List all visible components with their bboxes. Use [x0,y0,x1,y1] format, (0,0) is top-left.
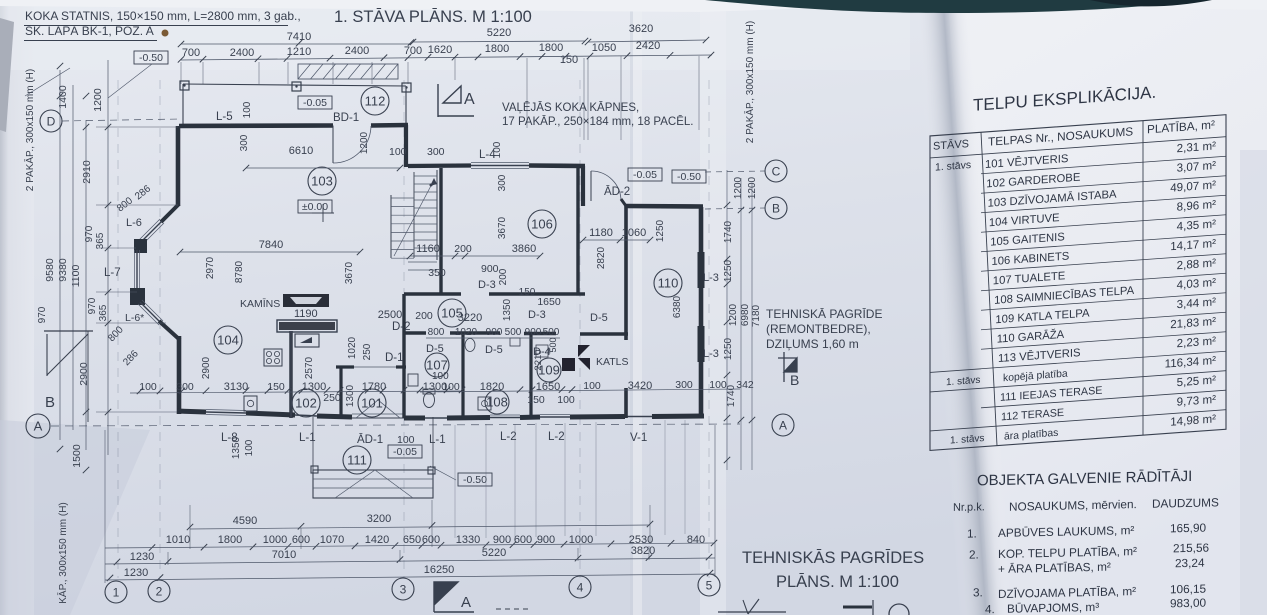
svg-text:KOP. TELPU PLATĪBA, m²: KOP. TELPU PLATĪBA, m² [998,544,1137,561]
svg-text:150: 150 [560,54,578,66]
svg-text:900: 900 [481,263,499,275]
svg-text:1500: 1500 [71,444,83,468]
svg-text:970: 970 [87,297,98,314]
svg-text:D-5: D-5 [426,343,444,355]
svg-text:-0.50: -0.50 [677,171,701,183]
svg-text:1050: 1050 [592,42,616,54]
svg-text:-0.50: -0.50 [463,474,487,486]
svg-text:3860: 3860 [512,243,536,255]
svg-text:2 PAKĀP., 300x150 mm (H): 2 PAKĀP., 300x150 mm (H) [744,21,756,143]
svg-text:4: 4 [577,580,584,594]
svg-text:900: 900 [493,534,511,546]
svg-text:23,24: 23,24 [1175,556,1205,571]
svg-text:2210: 2210 [533,349,544,370]
svg-text:104: 104 [217,333,239,348]
svg-text:110: 110 [658,276,679,291]
svg-text:300: 300 [239,134,250,151]
svg-text:1800: 1800 [485,43,509,55]
svg-text:365: 365 [95,232,106,249]
svg-text:3670: 3670 [344,261,355,284]
svg-text:-0.05: -0.05 [393,446,417,458]
svg-text:1740: 1740 [723,220,734,243]
svg-text:150: 150 [527,394,545,406]
svg-text:4590: 4590 [233,515,257,527]
svg-text:2500: 2500 [378,309,402,321]
svg-text:3: 3 [400,582,407,596]
svg-text:7840: 7840 [259,239,283,251]
svg-text:ĀD-2: ĀD-2 [604,186,630,198]
svg-text:1800: 1800 [218,534,242,546]
svg-text:A: A [464,91,475,108]
svg-text:L-1: L-1 [429,434,446,446]
svg-text:350: 350 [428,267,446,279]
svg-text:983,00: 983,00 [1170,596,1207,611]
svg-text:1020: 1020 [347,336,358,359]
svg-text:L-6: L-6 [126,217,142,229]
svg-text:D-5: D-5 [485,344,503,356]
svg-text:1: 1 [113,585,120,599]
svg-text:250: 250 [362,343,373,360]
svg-text:5: 5 [706,578,713,592]
svg-text:1200: 1200 [747,176,758,199]
svg-text:BD-1: BD-1 [333,112,359,124]
svg-text:1190: 1190 [294,308,318,320]
svg-text:4.: 4. [985,602,995,615]
svg-text:-0.05: -0.05 [633,169,657,181]
svg-text:L-2: L-2 [500,431,517,443]
svg-text:2910: 2910 [81,160,93,184]
svg-text:2970: 2970 [205,256,216,279]
svg-text:3.: 3. [973,585,983,599]
svg-text:B: B [772,201,780,215]
svg-text:103: 103 [311,174,333,189]
svg-text:KĀP., 300x150 mm (H): KĀP., 300x150 mm (H) [57,502,69,604]
svg-text:2400: 2400 [345,45,369,57]
svg-text:106: 106 [531,217,553,232]
svg-text:16250: 16250 [424,564,455,576]
svg-text:100: 100 [244,439,255,456]
svg-text:500: 500 [548,337,558,352]
svg-text:L-7: L-7 [104,267,121,279]
svg-text:1200: 1200 [92,88,104,112]
svg-text:1300: 1300 [345,384,356,407]
svg-text:100: 100 [557,394,575,406]
svg-text:17 PAKĀP., 250×184 mm, 18 PACĒ: 17 PAKĀP., 250×184 mm, 18 PACĒL. [502,116,693,128]
svg-text:A: A [779,418,787,432]
svg-text:8780: 8780 [234,260,245,283]
svg-text:BŪVAPJOMS, m³: BŪVAPJOMS, m³ [1007,600,1099,615]
svg-text:1650: 1650 [537,296,561,308]
svg-text:KATLS: KATLS [596,356,628,368]
svg-text:700: 700 [182,47,200,59]
svg-text:1620: 1620 [428,44,452,56]
svg-text:1330: 1330 [456,534,480,546]
svg-text:V-1: V-1 [630,432,647,444]
svg-text:1010: 1010 [166,534,190,546]
svg-text:2900: 2900 [201,356,212,379]
svg-text:150: 150 [519,287,536,298]
svg-text:600: 600 [422,534,440,546]
svg-text:3820: 3820 [631,545,655,557]
svg-text:6380: 6380 [672,295,683,318]
svg-text:102: 102 [295,396,317,411]
svg-text:108: 108 [486,395,508,410]
svg-text:800: 800 [428,327,445,338]
svg-text:3220: 3220 [458,312,482,324]
svg-text:DAUDZUMS: DAUDZUMS [1152,495,1219,510]
svg-text:ĀD-1: ĀD-1 [357,434,383,446]
svg-text:1160: 1160 [416,243,440,255]
svg-text:2820: 2820 [596,246,607,269]
svg-text:2420: 2420 [636,40,660,52]
svg-text:200: 200 [415,310,433,322]
svg-text:NOSAUKUMS, mērvien.: NOSAUKUMS, mērvien. [1009,497,1137,514]
svg-text:VAĻĒJĀS KOKA KĀPNES,: VAĻĒJĀS KOKA KĀPNES, [502,102,639,114]
svg-text:1420: 1420 [365,534,389,546]
svg-text:1800: 1800 [539,42,563,54]
svg-text:2: 2 [156,584,163,598]
svg-text:900: 900 [525,327,542,338]
svg-text:100: 100 [139,381,157,393]
svg-text:600: 600 [292,534,310,546]
svg-text:DZIĻUMS 1,60 m: DZIĻUMS 1,60 m [766,337,859,351]
svg-text:1200: 1200 [728,303,739,326]
svg-text:9380: 9380 [57,258,69,282]
svg-text:KAMĪNS: KAMĪNS [240,298,280,310]
svg-text:111: 111 [347,453,367,468]
svg-text:C: C [772,164,781,178]
svg-text:300: 300 [497,174,508,191]
svg-text:B: B [45,394,55,411]
svg-text:1250: 1250 [655,219,666,242]
svg-text:D-3: D-3 [478,279,496,291]
svg-text:106,15: 106,15 [1170,582,1207,597]
svg-text:1020: 1020 [455,327,478,338]
svg-text:PLĀNS. M 1:100: PLĀNS. M 1:100 [776,573,899,591]
svg-text:100: 100 [242,101,253,118]
svg-text:L-5: L-5 [216,111,233,123]
svg-text:150: 150 [267,381,285,393]
svg-text:1250: 1250 [723,259,734,282]
svg-text:L-3: L-3 [703,272,719,284]
svg-text:1230: 1230 [130,551,154,563]
svg-text:KOKA STATNIS, 150×150 mm, L=28: KOKA STATNIS, 150×150 mm, L=2800 mm, 3 g… [25,9,301,23]
svg-text:A: A [34,419,43,434]
svg-text:100: 100 [397,434,415,446]
svg-text:700: 700 [404,45,422,57]
svg-text:SK. LAPĀ BK-1, POZ. A: SK. LAPĀ BK-1, POZ. A [25,24,154,38]
svg-text:200: 200 [454,243,472,255]
svg-text:5220: 5220 [482,547,506,559]
svg-text:1210: 1210 [287,46,311,58]
svg-text:L-3: L-3 [703,348,719,360]
svg-text:DZĪVOJAMA PLATĪBA, m²: DZĪVOJAMA PLATĪBA, m² [998,584,1136,601]
svg-text:(REMONTBEDRE),: (REMONTBEDRE), [766,322,871,336]
svg-text:650: 650 [403,534,421,546]
svg-text:2 PAKĀP., 300x150 mm (H): 2 PAKĀP., 300x150 mm (H) [24,69,36,191]
svg-text:2570: 2570 [304,356,315,379]
svg-text:D-1: D-1 [385,352,404,364]
svg-text:200: 200 [498,268,509,285]
svg-text:TEHNISKĀ PAGRĪDE: TEHNISKĀ PAGRĪDE [766,307,882,321]
svg-text:1.: 1. [967,526,977,540]
svg-text:7410: 7410 [287,31,311,43]
svg-text:Nr.p.k.: Nr.p.k. [953,501,985,514]
svg-text:2400: 2400 [230,47,254,59]
svg-text:A: A [461,594,471,611]
svg-text:B: B [790,372,799,388]
svg-text:-0.50: -0.50 [139,52,163,64]
svg-text:3670: 3670 [497,216,508,239]
svg-text:±0.00: ±0.00 [302,201,328,213]
svg-text:840: 840 [687,534,705,546]
svg-text:1000: 1000 [263,534,287,546]
svg-text:250: 250 [323,392,341,404]
svg-text:APBŪVES LAUKUMS, m²: APBŪVES LAUKUMS, m² [998,523,1134,540]
svg-text:1250: 1250 [723,337,734,360]
svg-text:D-2: D-2 [392,321,411,333]
svg-text:1230: 1230 [124,567,148,579]
svg-text:6610: 6610 [289,145,313,157]
svg-text:L-2: L-2 [548,431,565,443]
svg-text:1. STĀVA PLĀNS. M 1:100: 1. STĀVA PLĀNS. M 1:100 [334,8,532,26]
svg-text:1100: 1100 [70,265,82,288]
svg-text:3130: 3130 [224,381,248,393]
svg-text:1350: 1350 [502,298,513,321]
svg-text:165,90: 165,90 [1170,521,1207,536]
svg-text:7180: 7180 [751,304,762,327]
svg-text:D-5: D-5 [590,312,608,324]
svg-text:500: 500 [543,327,560,338]
svg-text:300: 300 [427,146,445,158]
svg-text:1200: 1200 [733,176,744,199]
svg-text:215,56: 215,56 [1173,541,1210,556]
svg-text:100: 100 [389,146,407,158]
svg-text:1070: 1070 [320,534,344,546]
svg-text:3200: 3200 [367,513,391,525]
svg-text:5220: 5220 [487,27,511,39]
svg-text:+ ĀRA PLATĪBAS, m²: + ĀRA PLATĪBAS, m² [998,560,1111,576]
svg-text:9580: 9580 [44,258,56,282]
svg-text:-0.05: -0.05 [303,97,327,109]
svg-text:500: 500 [505,327,522,338]
svg-text:D: D [47,114,56,128]
svg-text:TEHNISKĀS PAGRĪDES: TEHNISKĀS PAGRĪDES [742,549,924,567]
svg-text:2.: 2. [969,547,979,561]
svg-text:900: 900 [486,327,503,338]
svg-text:970: 970 [37,306,48,323]
svg-text:6980: 6980 [740,303,751,326]
svg-text:1060: 1060 [622,227,646,239]
svg-text:100: 100 [492,141,503,158]
svg-text:300: 300 [176,381,194,393]
svg-text:7010: 7010 [272,549,296,561]
svg-text:3620: 3620 [629,23,653,35]
svg-text:365: 365 [98,304,109,321]
svg-text:D-3: D-3 [528,309,546,321]
svg-text:112: 112 [365,94,386,109]
svg-text:L-8: L-8 [221,432,238,444]
svg-text:101: 101 [361,396,383,411]
svg-text:1200: 1200 [359,131,370,154]
svg-text:L-6*: L-6* [125,312,144,324]
svg-text:1180: 1180 [589,227,613,239]
